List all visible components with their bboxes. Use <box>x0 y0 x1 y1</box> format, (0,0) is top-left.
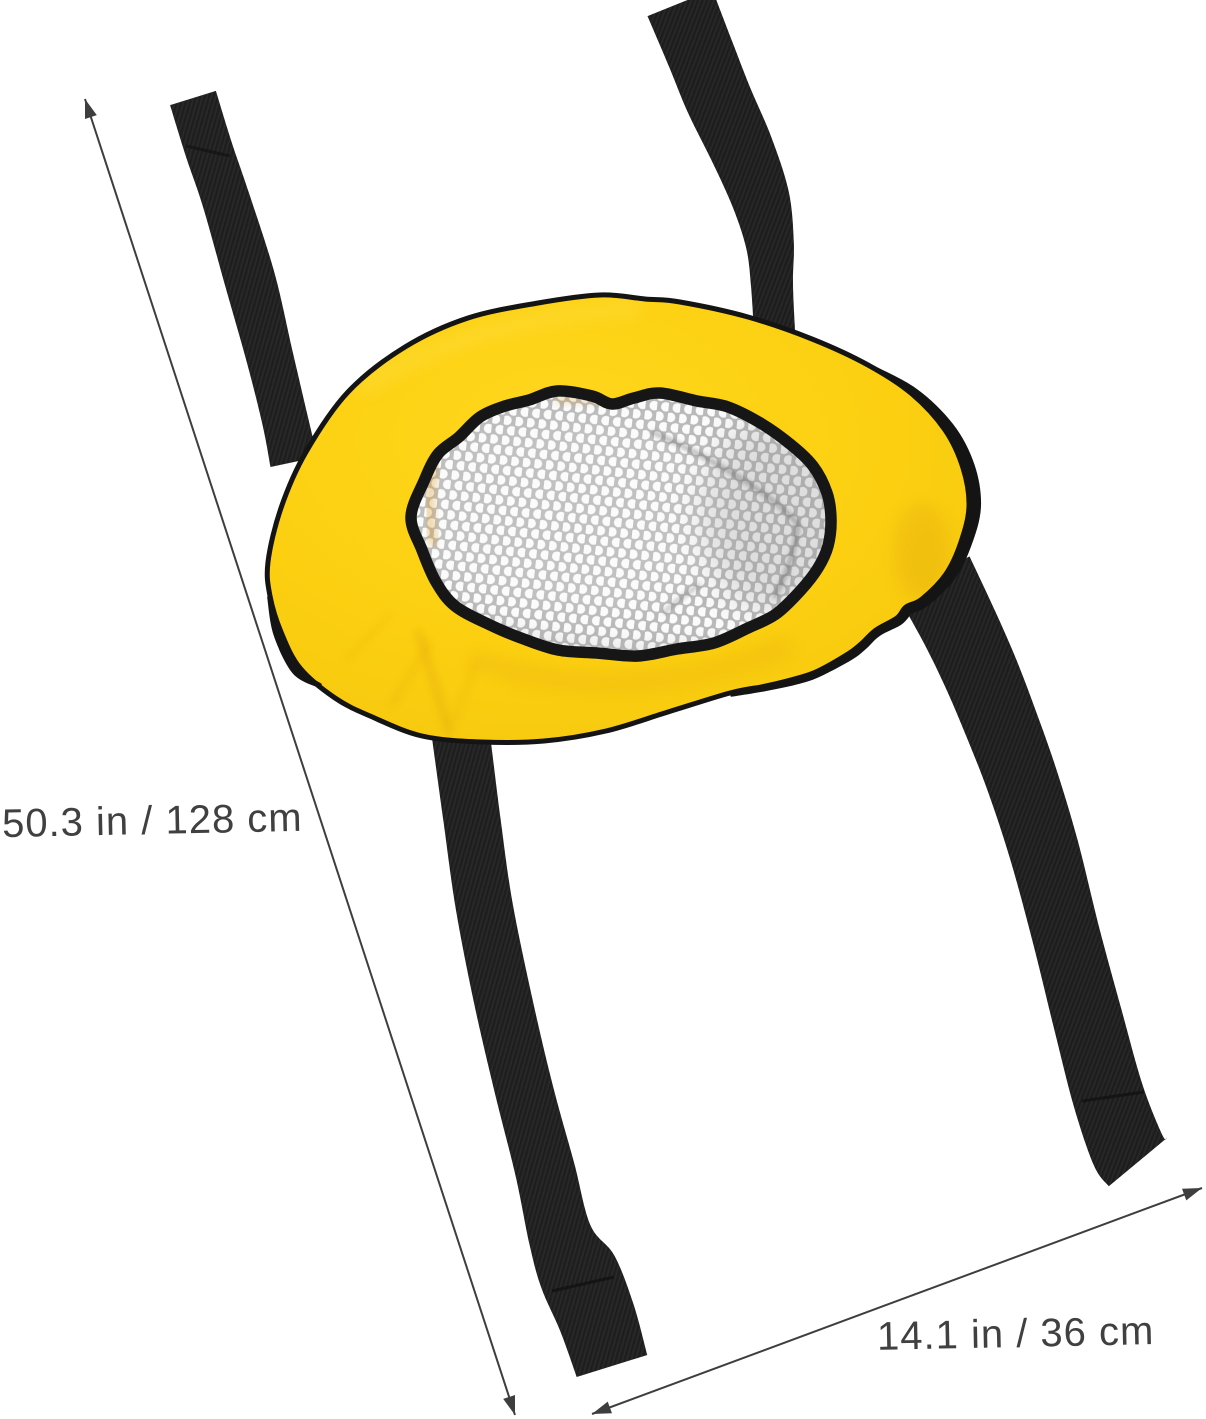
svg-text:50.3 in / 128 cm: 50.3 in / 128 cm <box>2 796 303 846</box>
svg-text:14.1 in / 36 cm: 14.1 in / 36 cm <box>877 1309 1155 1359</box>
